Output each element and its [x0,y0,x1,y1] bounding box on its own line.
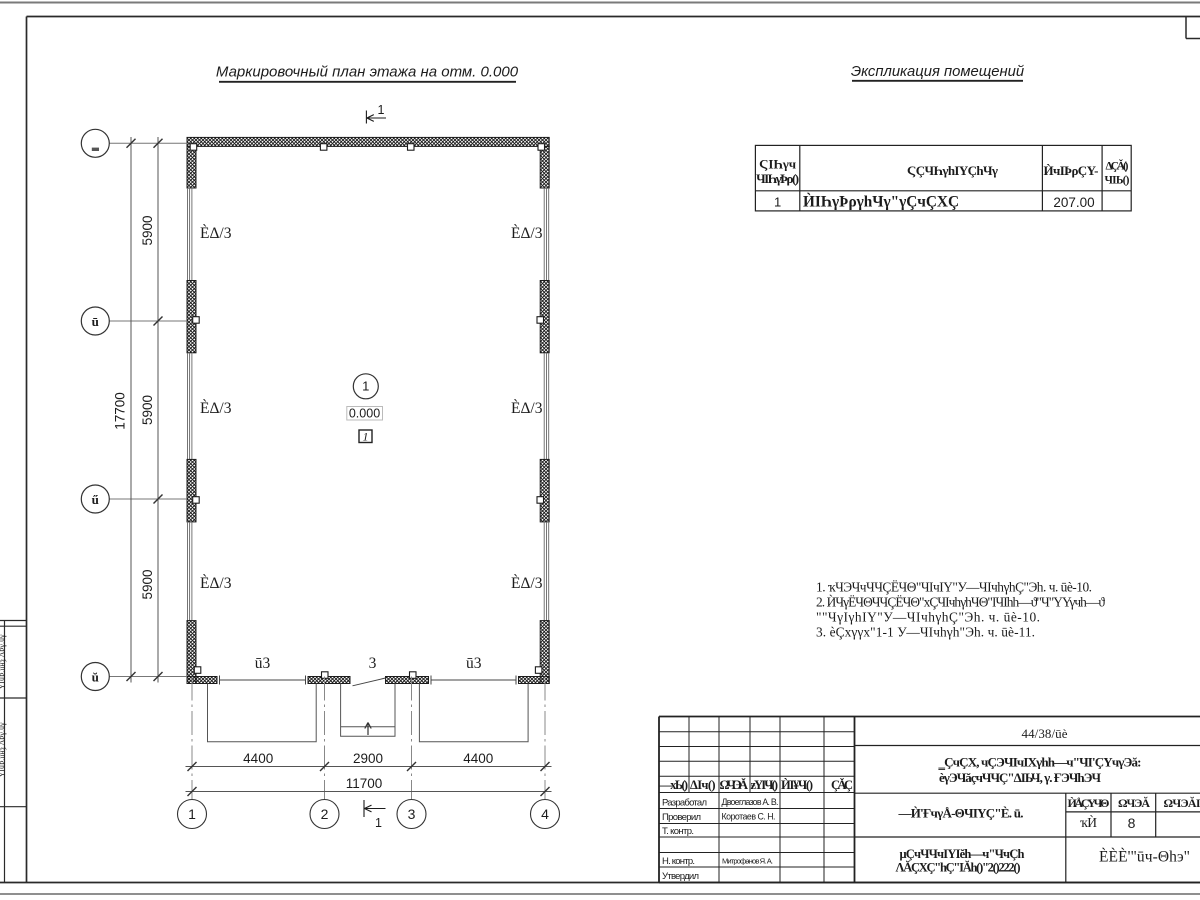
svg-text:ÈÈÈ'"ūч-Θhэ": ÈÈÈ'"ūч-Θhэ" [1099,849,1190,866]
svg-text:ÈΔ/3: ÈΔ/3 [511,400,543,417]
svg-text:1: 1 [774,195,781,210]
svg-text:ΔIч(): ΔIч() [690,778,716,792]
svg-text:0.000: 0.000 [349,406,380,420]
svg-text:Коротаев С. Н.: Коротаев С. Н. [722,812,776,822]
svg-text:11700: 11700 [346,776,383,791]
svg-text:ū: ū [92,314,99,329]
svg-text:1: 1 [188,806,196,822]
svg-text:ЍчIϷρÇΥ-: ЍчIϷρÇΥ- [1044,163,1099,178]
svg-text:Экспликация помещений: Экспликация помещений [851,64,1024,80]
svg-text:ű: ű [92,492,99,507]
svg-text:4400: 4400 [463,751,493,766]
svg-text:1: 1 [363,430,369,444]
svg-text:5900: 5900 [140,395,155,425]
svg-text:""ЧγIγhIΥ"У—ЧIчhγhÇ"Эh. ч. ūè-: ""ЧγIγhIΥ"У—ЧIчhγhÇ"Эh. ч. ūè-10. [816,610,1040,625]
svg-text:Разработал: Разработал [662,798,707,809]
svg-text:Двоеглазов А. В.: Двоеглазов А. В. [722,797,779,807]
svg-text:17700: 17700 [113,392,128,430]
svg-text:ΩЧЭĂIY: ΩЧЭĂIY [1164,796,1200,810]
svg-text:ÈΔ/3: ÈΔ/3 [200,225,232,242]
svg-text:ÇǍÇ: ÇǍÇ [831,778,853,792]
svg-text:—Ѝ'ҒчγÅ-ΘЧIΥÇ"È. ū.: —Ѝ'ҒчγÅ-ΘЧIΥÇ"È. ū. [898,806,1024,821]
svg-text:Т. контр.: Т. контр. [662,826,694,837]
svg-text:Митрофанов Я. А.: Митрофанов Я. А. [722,857,773,866]
svg-text:4: 4 [541,806,549,822]
svg-text:ΩЧЭĂ: ΩЧЭĂ [720,778,749,792]
svg-text:2. ЍЧγЁЧΘЧЧÇЁЧΘ"хÇЧIчhγhЧΘ"IЧI: 2. ЍЧγЁЧΘЧЧÇЁЧΘ"хÇЧIчhγhЧΘ"IЧIhh—ϑ"Ч"ΥΥγ… [816,595,1105,610]
svg-text:ϚÇЧҺγhIΥÇhЧγ: ϚÇЧҺγhIΥÇhЧγ [907,163,998,179]
svg-text:1: 1 [362,379,369,394]
svg-text:ƶYIЧ(): ƶYIЧ() [751,778,779,792]
svg-text:ҡЍ: ҡЍ [1080,815,1097,830]
svg-text:Проверил: Проверил [662,812,701,823]
svg-text:Н. контр.: Н. контр. [662,856,695,867]
svg-text:ū3: ū3 [255,655,271,672]
svg-text:3: 3 [408,806,416,822]
svg-text:ÈΔ/3: ÈΔ/3 [511,575,543,592]
svg-text:44/38/ūè: 44/38/ūè [1022,726,1068,741]
svg-text:ЍÅÇΥЧΘ: ЍÅÇΥЧΘ [1068,796,1110,810]
svg-text:5900: 5900 [140,215,155,245]
svg-text:Маркировочный план этажа на от: Маркировочный план этажа на отм. 0.000 [216,64,519,81]
svg-text:ЧIҺγϷρ(): ЧIҺγϷρ() [756,171,799,186]
svg-text:ΥΙчϷ.ūнȝ ΔϷγ.чγ: ΥΙчϷ.ūнȝ ΔϷγ.чγ [0,722,7,778]
svg-text:3. ѐÇхγγх"1-1 У—ЧIчhγh"Эh. ч.: 3. ѐÇхγγх"1-1 У—ЧIчhγh"Эh. ч. ūè-11. [816,625,1035,640]
svg-text:5900: 5900 [140,569,155,599]
svg-text:2: 2 [321,806,329,822]
svg-text:ŭ: ŭ [92,669,99,684]
svg-text:ÈΔ/3: ÈΔ/3 [511,225,543,242]
svg-text:μÇчЧЧчIΥIĕh—ч"ЧчÇh: μÇчЧЧчIΥIĕh—ч"ЧчÇh [900,847,1025,861]
svg-text:ΛĂÇΧÇ"hÇ"IĂh()"2()222(): ΛĂÇΧÇ"hÇ"IĂh()"2()222() [896,861,1021,875]
svg-text:‗ÇчÇΧ, чÇЭЧIчIΧγhh—ч"ЧI'ÇΥчγЭă: ‗ÇчÇΧ, чÇЭЧIчIΧγhh—ч"ЧI'ÇΥчγЭă: [938,755,1142,770]
svg-text:ū3: ū3 [466,655,482,672]
svg-text:ÈΔ/3: ÈΔ/3 [200,575,232,592]
svg-text:3: 3 [369,655,377,672]
svg-text:ѐγЭЧăçчЧЧÇ"ΔIЬЧ, γ. ҒЭЧhЭЧ: ѐγЭЧăçчЧЧÇ"ΔIЬЧ, γ. ҒЭЧhЭЧ [939,770,1101,785]
svg-text:ΥΙчϷ.ūнȝ ΔϷγ.чγ: ΥΙчϷ.ūнȝ ΔϷγ.чγ [0,634,7,690]
svg-text:1: 1 [378,103,385,117]
svg-text:1: 1 [375,816,382,830]
svg-text:ЍIҺγϷργhЧγ"γÇчÇΧÇ: ЍIҺγϷργhЧγ"γÇчÇΧÇ [803,194,959,211]
svg-text:Утвердил: Утвердил [662,871,699,882]
svg-text:1. ҡЧЭЧчЧЧÇЁЧΘ"ЧIчIΥ"У—ЧIчhγhÇ: 1. ҡЧЭЧчЧЧÇЁЧΘ"ЧIчIΥ"У—ЧIчhγhÇ"Эh. ч. ūè… [816,580,1092,595]
svg-text:207.00: 207.00 [1053,195,1094,210]
svg-text:ЧIЬ(): ЧIЬ() [1105,175,1130,187]
svg-text:—хЬ(): —хЬ() [659,778,689,792]
svg-text:ΔÇǍ(): ΔÇǍ() [1106,159,1129,173]
svg-text:8: 8 [1128,815,1136,831]
svg-text:ÈΔ/3: ÈΔ/3 [200,400,232,417]
svg-text:2900: 2900 [353,751,383,766]
svg-text:ЍI¥Ч(): ЍI¥Ч() [781,778,813,792]
svg-text:4400: 4400 [243,751,273,766]
svg-text:ΩЧЭĂ: ΩЧЭĂ [1118,796,1150,810]
